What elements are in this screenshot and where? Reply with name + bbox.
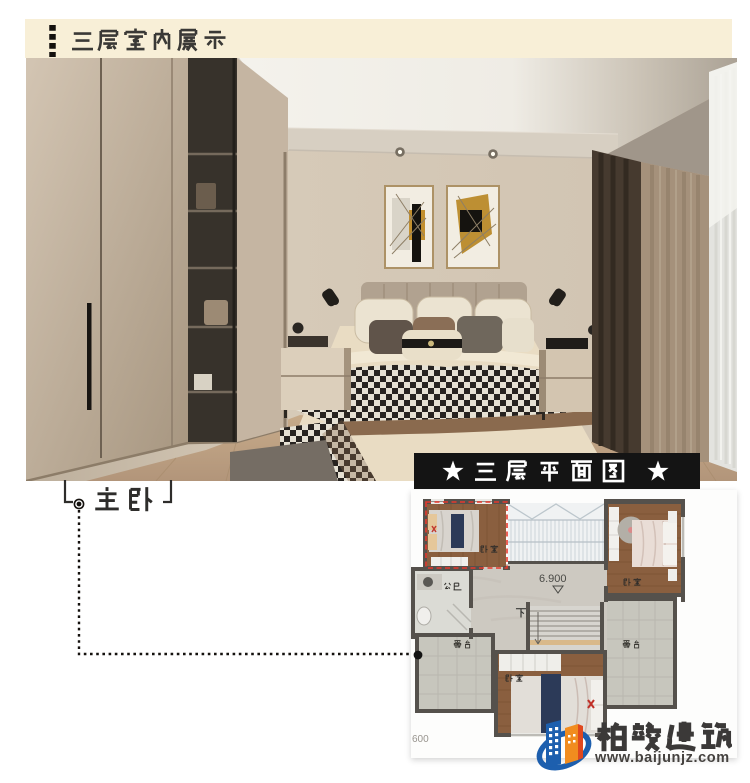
- svg-text:600: 600: [412, 734, 429, 745]
- svg-text:6.900: 6.900: [539, 573, 567, 585]
